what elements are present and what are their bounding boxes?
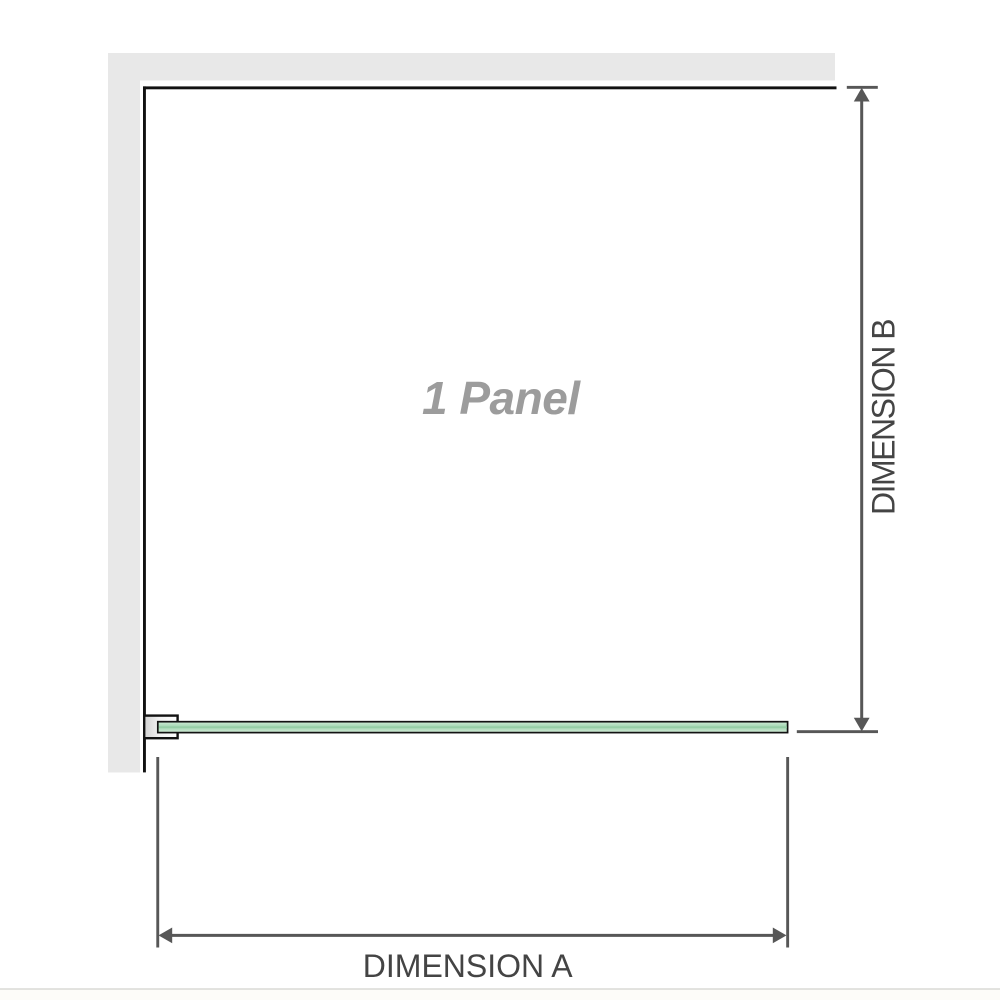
svg-text:DIMENSION B: DIMENSION B	[866, 320, 902, 515]
svg-text:DIMENSION A: DIMENSION A	[363, 948, 573, 984]
svg-text:1 Panel: 1 Panel	[422, 372, 581, 424]
